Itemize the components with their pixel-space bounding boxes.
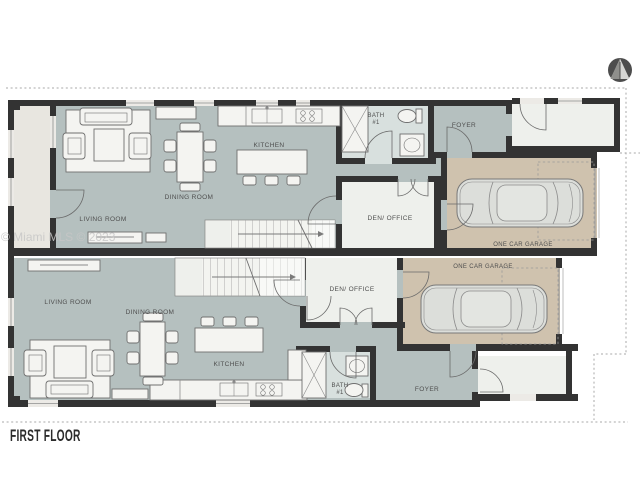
upper-dining-room-label: DINING ROOM [165, 194, 214, 201]
sink-icon [400, 134, 424, 156]
upper-living-room-label: LIVING ROOM [79, 216, 126, 223]
north-arrow-icon [608, 58, 632, 82]
lower-bath-label-line2: #1 [336, 390, 344, 396]
upper-kitchen-counter [218, 106, 340, 126]
lower-dining-room-label: DINING ROOM [126, 309, 175, 316]
upper-car-icon [457, 179, 583, 227]
sink-icon [346, 356, 368, 376]
upper-kitchen-label: KITCHEN [254, 142, 285, 149]
toilet-icon [398, 109, 422, 123]
lower-entry-floor [478, 356, 566, 400]
upper-bath-label-line2: #1 [372, 120, 380, 126]
lower-living-room-label: LIVING ROOM [44, 299, 91, 306]
watermark: © Miami MLS © 2023 [1, 230, 115, 244]
lower-kitchen-label: KITCHEN [214, 361, 245, 368]
upper-entry-floor [512, 104, 614, 146]
lower-den-office-label: DEN/ OFFICE [329, 286, 374, 293]
floor-title: FIRST FLOOR [10, 426, 81, 446]
upper-garage-label: ONE CAR GARAGE [493, 242, 553, 248]
lower-garage-label: ONE CAR GARAGE [453, 264, 513, 270]
lower-car-icon [421, 285, 547, 333]
lower-stairs [175, 258, 305, 296]
upper-bath-label-line1: BATH [368, 113, 385, 119]
lower-bath-label-line1: BATH [332, 383, 349, 389]
lower-kitchen-island [195, 317, 263, 352]
upper-porch [14, 106, 50, 248]
lower-unit: LIVING ROOM DINING ROOM KITCHEN DEN/ OFF… [8, 256, 578, 407]
floor-plan-page: LIVING ROOM DINING ROOM KITCHEN DEN/ OFF… [0, 0, 640, 480]
upper-kitchen-island [237, 150, 307, 185]
lower-foyer-label: FOYER [415, 386, 439, 393]
upper-foyer-label: FOYER [452, 122, 476, 129]
upper-den-office-label: DEN/ OFFICE [367, 215, 412, 222]
